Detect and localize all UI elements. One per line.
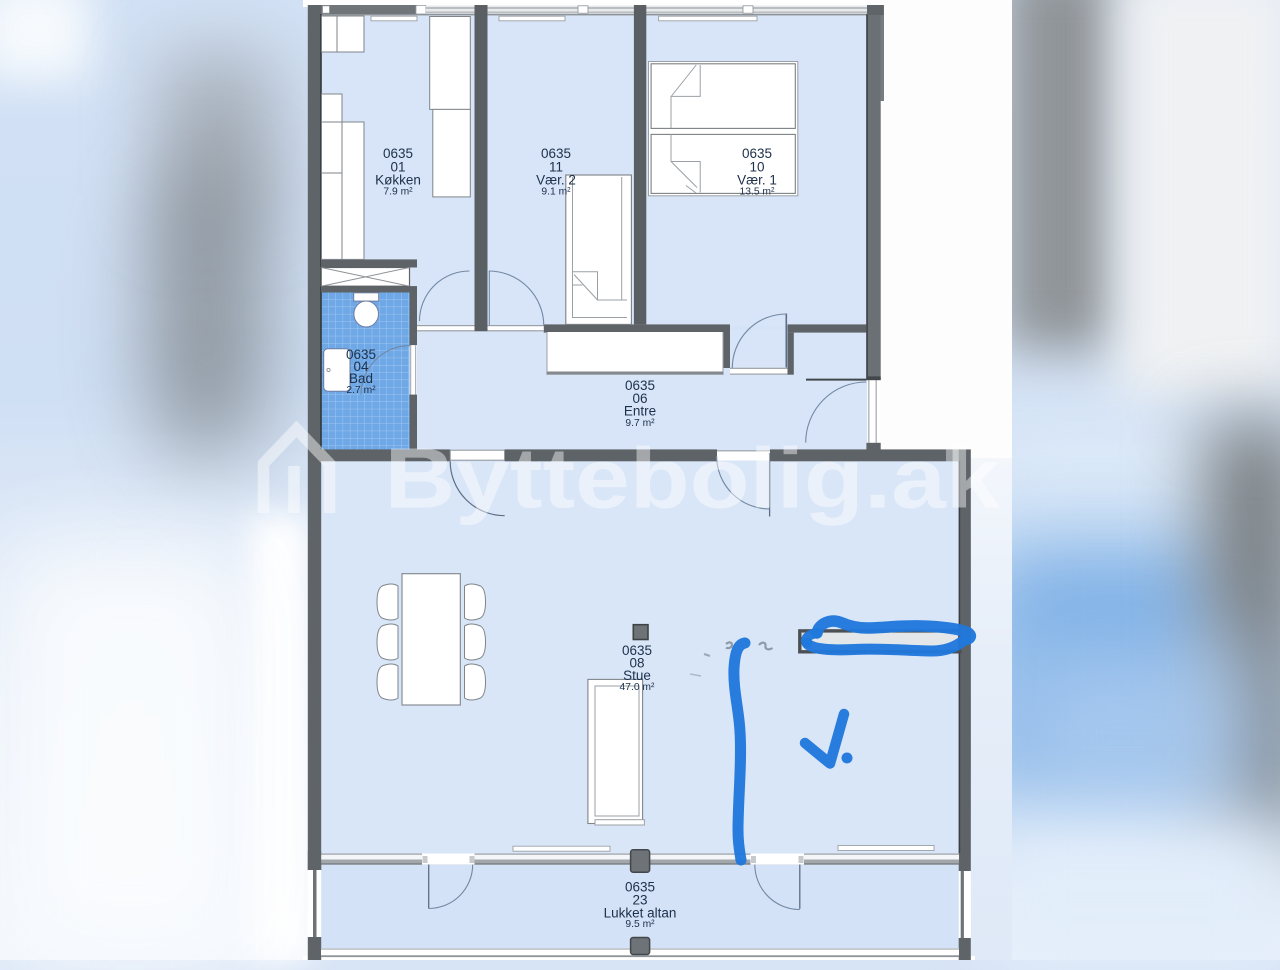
svg-text:Byttebolig.ak: Byttebolig.ak — [385, 432, 1002, 526]
svg-text:47.0 m²: 47.0 m² — [620, 682, 655, 693]
svg-text:2.7 m²: 2.7 m² — [346, 385, 376, 396]
svg-text:Entre: Entre — [624, 404, 656, 419]
svg-text:Vær. 1: Vær. 1 — [737, 172, 777, 187]
svg-text:9.1 m²: 9.1 m² — [541, 186, 571, 197]
svg-text:13.5 m²: 13.5 m² — [740, 186, 775, 197]
svg-text:Stue: Stue — [623, 668, 651, 683]
svg-text:Vær. 2: Vær. 2 — [536, 172, 576, 187]
svg-text:7.9 m²: 7.9 m² — [383, 186, 413, 197]
svg-text:9.7 m²: 9.7 m² — [625, 418, 655, 429]
svg-text:9.5 m²: 9.5 m² — [625, 919, 655, 930]
svg-text:Køkken: Køkken — [375, 172, 421, 187]
